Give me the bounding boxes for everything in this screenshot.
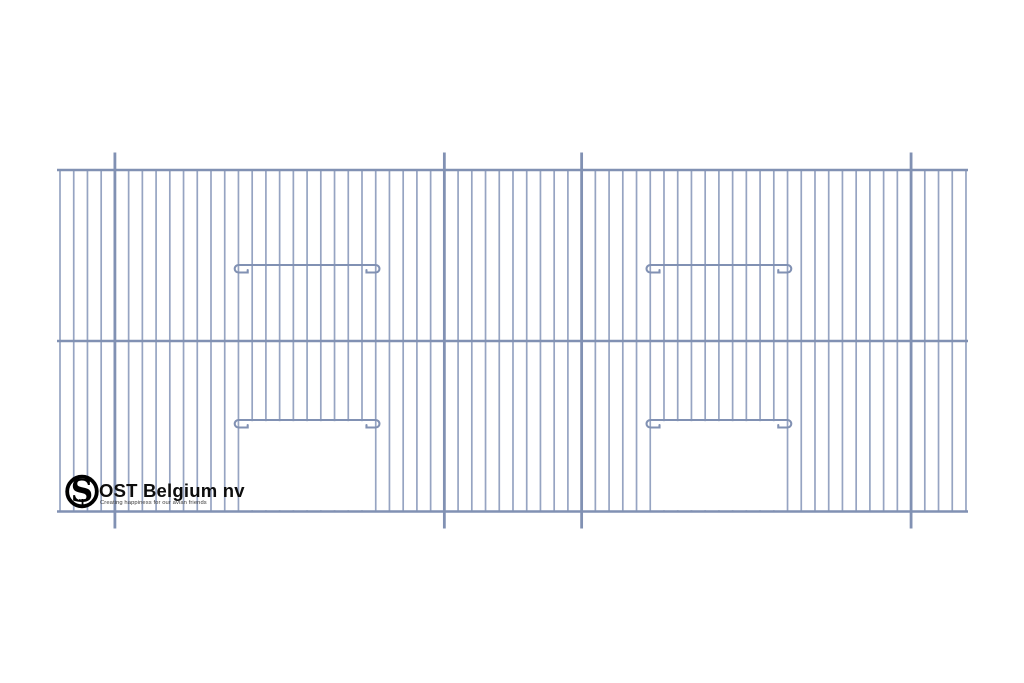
product-image: S T OST Belgium nv Creating happiness fo… [0,0,1024,683]
logo-tagline: Creating happiness for our avian friends [100,500,207,506]
logo-monogram-t-letter: T [79,498,86,509]
cage-front-drawing: S T OST Belgium nv Creating happiness fo… [0,0,1024,683]
ost-logo: S T OST Belgium nv Creating happiness fo… [67,474,245,510]
logo-title: OST Belgium nv [99,480,245,501]
